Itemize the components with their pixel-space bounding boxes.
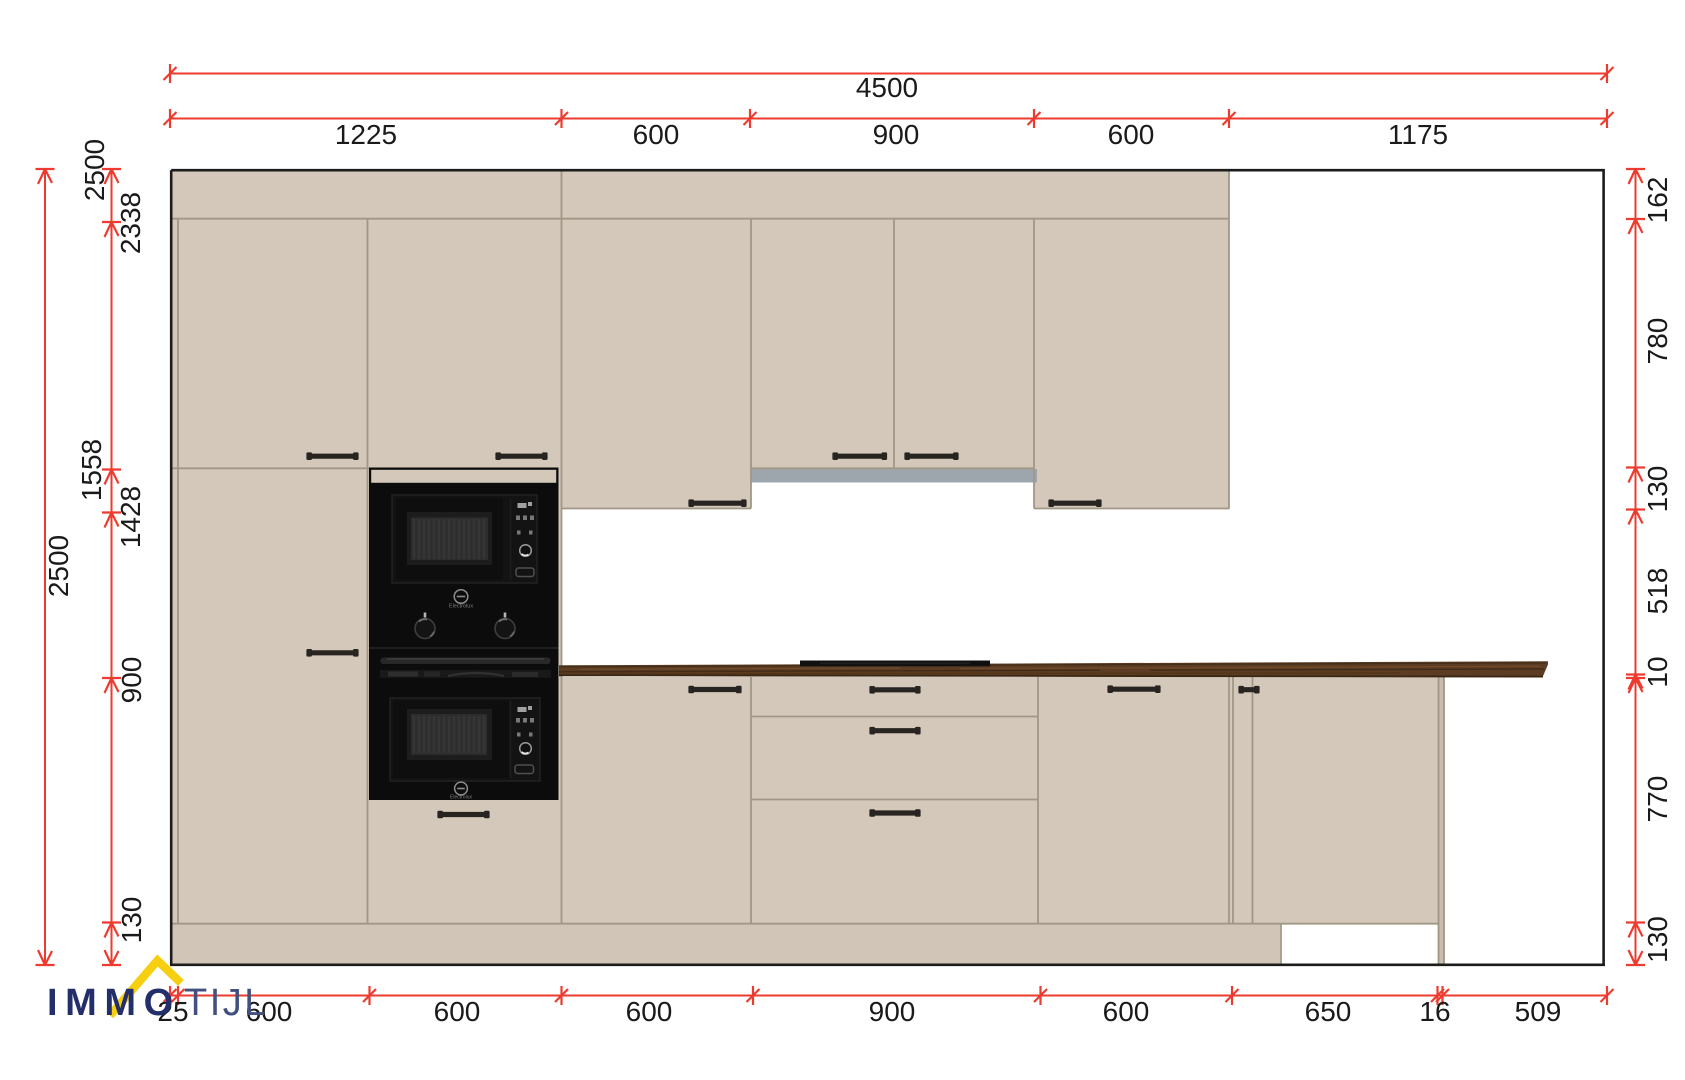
- svg-text:Electrolux: Electrolux: [449, 604, 473, 610]
- svg-text:900: 900: [116, 657, 147, 704]
- svg-text:IMMO: IMMO: [47, 982, 181, 1024]
- svg-text:16: 16: [1419, 996, 1450, 1027]
- svg-text:4500: 4500: [856, 72, 918, 103]
- svg-text:130: 130: [1642, 916, 1673, 963]
- svg-text:TIJL: TIJL: [184, 982, 268, 1024]
- svg-text:Electrolux: Electrolux: [450, 795, 472, 801]
- svg-text:162: 162: [1642, 177, 1673, 224]
- svg-text:509: 509: [1515, 996, 1562, 1027]
- svg-text:1225: 1225: [335, 119, 397, 150]
- svg-text:130: 130: [116, 897, 147, 944]
- svg-text:600: 600: [633, 119, 680, 150]
- svg-text:650: 650: [1305, 996, 1352, 1027]
- svg-text:1175: 1175: [1388, 119, 1448, 150]
- svg-text:1558: 1558: [76, 439, 107, 501]
- svg-text:10: 10: [1642, 656, 1673, 687]
- svg-text:1428: 1428: [115, 486, 146, 548]
- svg-text:600: 600: [434, 996, 481, 1027]
- svg-text:600: 600: [1103, 996, 1150, 1027]
- svg-text:900: 900: [869, 996, 916, 1027]
- svg-text:130: 130: [1642, 466, 1673, 513]
- svg-text:2500: 2500: [79, 139, 110, 201]
- svg-text:2338: 2338: [115, 192, 146, 254]
- svg-text:2500: 2500: [43, 535, 74, 597]
- svg-text:518: 518: [1642, 568, 1673, 615]
- svg-text:770: 770: [1642, 776, 1673, 823]
- svg-text:600: 600: [1108, 119, 1155, 150]
- svg-text:600: 600: [626, 996, 673, 1027]
- svg-text:900: 900: [873, 119, 920, 150]
- svg-text:780: 780: [1642, 318, 1673, 365]
